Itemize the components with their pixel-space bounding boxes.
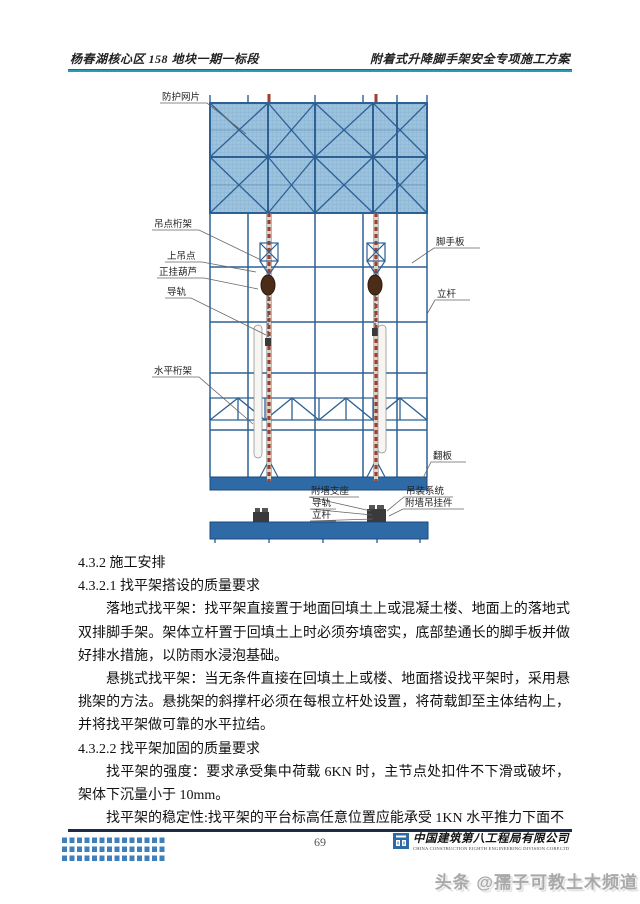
label-wall-support: 附墙支座 [311,485,350,497]
paragraph-ground-type: 落地式找平架：找平架直接置于地面回填土上或混凝土楼、地面上的落地式双排脚手架。架… [78,598,570,668]
body-text: 4.3.2 施工安排 4.3.2.1 找平架搭设的质量要求 落地式找平架：找平架… [78,552,570,830]
page-number: 69 [300,835,340,850]
section-heading-432: 4.3.2 施工安排 [78,552,570,575]
footer-company-text: 中国建筑第八工程局有限公司 CHINA CONSTRUCTION EIGHTH … [413,833,569,852]
watermark-text: 头条 @孺子可教土木频道 [435,868,638,893]
paragraph-stability: 找平架的稳定性:找平架的平台标高任意位置应能承受 1KN 水平推力下面不 [78,807,570,830]
scaffold-diagram: 防护网片 吊点桁架 上吊点 正挂葫芦 导轨 水平桁架 脚手板 立杆 翻板 附墙支… [60,88,580,558]
lower-hanging-brackets [260,460,385,477]
label-vertical-pole: 立杆 [437,288,457,300]
label-hanging-point-truss: 吊点桁架 [154,218,193,230]
label-horizontal-truss: 水平桁架 [154,365,193,377]
scaffold-frame [210,213,427,477]
chain-guide-right [378,325,386,453]
ground-bar [210,522,428,543]
horizontal-truss [210,398,427,420]
footer-divider [68,829,572,832]
section-heading-4322: 4.3.2.2 找平架加固的质量要求 [78,738,570,761]
header-left-title: 杨春湖核心区 158 地块一期一标段 [70,50,259,67]
header-divider [68,69,572,72]
label-guide-rail-bottom: 导轨 [312,497,332,509]
company-logo-icon [393,833,409,849]
label-upper-hanging-point: 上吊点 [167,251,196,262]
company-name: 中国建筑第八工程局有限公司 [413,833,569,846]
header-right-title: 附着式升降脚手架安全专项施工方案 [370,50,570,67]
footer-company-block: 中国建筑第八工程局有限公司 CHINA CONSTRUCTION EIGHTH … [393,833,569,852]
label-vertical-pole-bottom: 立杆 [312,509,332,521]
label-hoist: 正挂葫芦 [159,266,197,278]
chain-guide-left [254,325,262,458]
protective-mesh-panel [210,103,427,213]
section-heading-4321: 4.3.2.1 找平架搭设的质量要求 [78,575,570,598]
paragraph-strength: 找平架的强度：要求承受集中荷载 6KN 时，主节点处扣件不下滑或破坏，架体下沉量… [78,761,570,807]
company-name-en: CHINA CONSTRUCTION EIGHTH ENGINEERING DI… [413,846,569,852]
label-hoisting-system: 吊装系统 [406,485,445,497]
label-guide-rail: 导轨 [167,286,187,298]
footer-decorative-pattern [62,834,165,861]
paragraph-cantilever-type: 悬挑式找平架：当无条件直接在回填土上或楼、地面搭设找平架时，采用悬挑架的方法。悬… [78,668,570,738]
label-flip-board: 翻板 [433,450,453,462]
label-protective-mesh: 防护网片 [162,91,200,103]
label-wall-hanging-part: 附墙吊挂件 [405,497,453,509]
document-page: 杨春湖核心区 158 地块一期一标段 附着式升降脚手架安全专项施工方案 [0,0,640,904]
label-scaffold-board: 脚手板 [436,236,465,248]
wall-support-device-left [253,508,269,522]
guide-rail-masts [267,213,379,481]
